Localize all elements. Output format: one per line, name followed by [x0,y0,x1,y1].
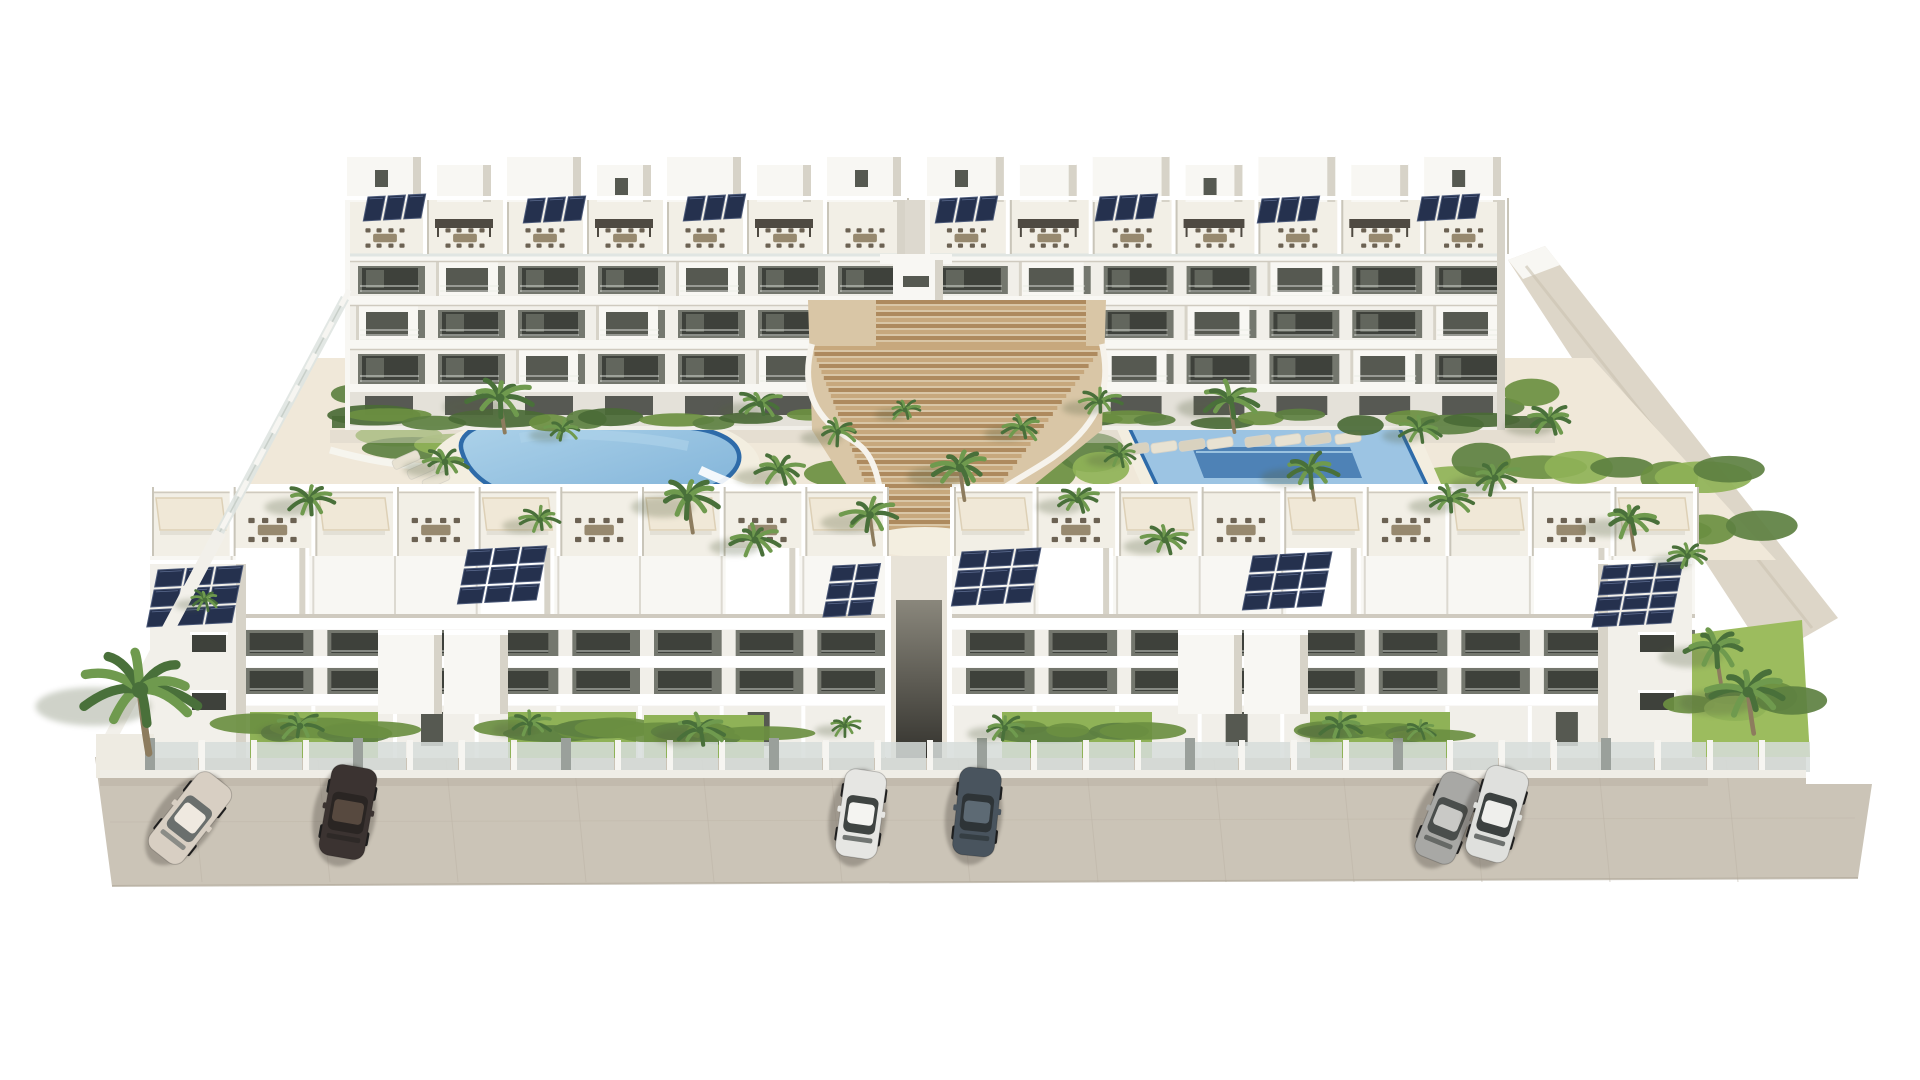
solar-panel-array [1417,194,1479,221]
solar-panel-array [1242,552,1332,610]
solar-panel-array [363,194,425,221]
solar-panel-array [457,546,547,604]
solar-panel-array [951,548,1041,606]
solar-panel-array [935,196,997,223]
solar-panel-array [1095,194,1157,221]
render-viewport [0,0,1920,1080]
solar-panel-array [683,194,745,221]
aerial-architectural-render [0,0,1920,1080]
solar-panel-array [1257,196,1319,223]
solar-panel-array [523,196,585,223]
central-passage [886,556,952,758]
